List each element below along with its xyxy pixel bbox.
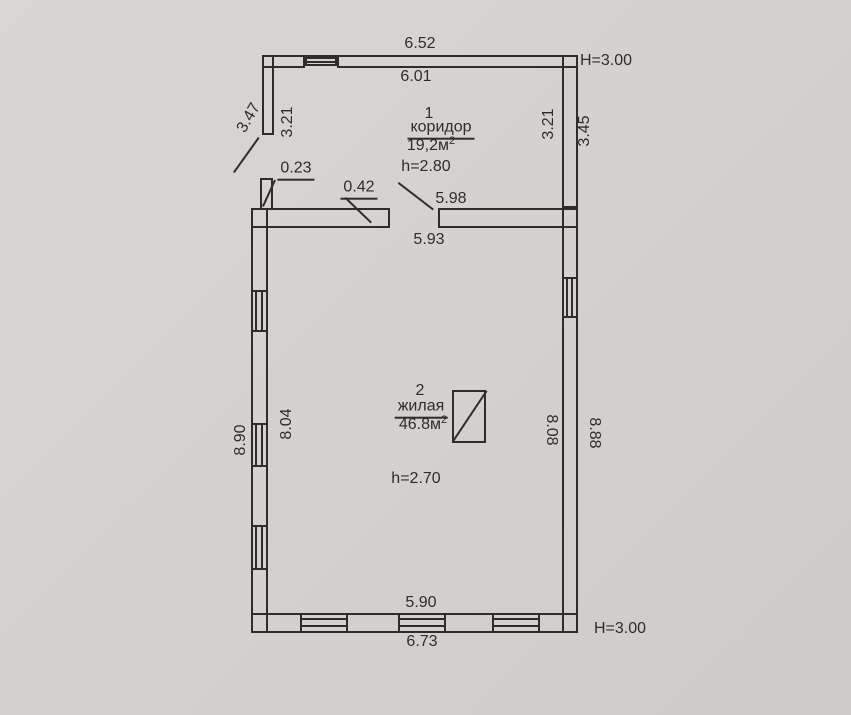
room1-area: 19,2м2	[407, 137, 455, 155]
dim-corridor-right-inner: 3.21	[540, 108, 558, 139]
dim-left-inner: 8.04	[278, 408, 296, 439]
window-bottom-1	[300, 613, 348, 633]
dim-bottom-outer: 6.73	[406, 633, 437, 651]
room2-name: жилая	[395, 398, 448, 419]
window-top	[305, 55, 337, 66]
dim-corridor-left-inner: 3.21	[279, 106, 297, 137]
dim-top-inner: 6.01	[400, 68, 431, 86]
dim-right-outer: 8.88	[585, 417, 603, 448]
dim-left-outer: 8.90	[232, 424, 250, 455]
wall-middle-right	[438, 208, 578, 228]
dim-top-outer: 6.52	[404, 35, 435, 53]
room2-ceiling-height: h=2.70	[391, 470, 440, 488]
wall-right	[562, 208, 578, 633]
dim-mid-wall-right: 5.98	[435, 190, 466, 208]
window-left-1	[251, 290, 268, 332]
door-swing-line	[398, 182, 434, 210]
dim-right-inner: 8.08	[542, 414, 560, 445]
dim-stub-width: 0.23	[277, 160, 314, 181]
dim-corridor-left-outer: 3.47	[234, 100, 265, 136]
leader-corner-line	[233, 137, 260, 173]
floor-plan: 6.52 6.01 H=3.00 3.47 3.21 3.21 3.45 1 к…	[0, 0, 851, 715]
dim-top-building-height: H=3.00	[580, 52, 632, 70]
dim-corridor-right-outer: 3.45	[576, 115, 594, 146]
room1-ceiling-height: h=2.80	[401, 158, 450, 176]
dim-mid-wall-inner: 5.93	[413, 231, 444, 249]
dim-bottom-inner: 5.90	[405, 594, 436, 612]
window-bottom-3	[492, 613, 540, 633]
window-bottom-2	[398, 613, 446, 633]
room2-area: 46.8м2	[399, 416, 447, 434]
wall-corridor-left	[262, 55, 274, 135]
dim-bottom-building-height: H=3.00	[594, 620, 646, 638]
dim-wall-thickness: 0.42	[340, 179, 377, 200]
wall-top-right	[337, 55, 578, 68]
window-left-3	[251, 525, 268, 570]
window-left-2	[251, 423, 268, 467]
wall-middle-left	[251, 208, 390, 228]
window-right-1	[562, 277, 578, 318]
room1-name: коридор	[407, 119, 474, 140]
